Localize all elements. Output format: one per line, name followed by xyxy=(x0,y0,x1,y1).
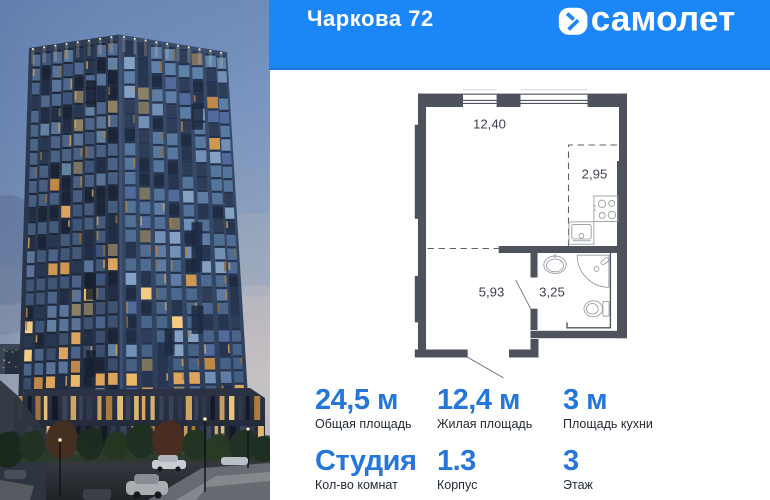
svg-text:2,95: 2,95 xyxy=(582,167,608,182)
svg-text:3,25: 3,25 xyxy=(539,285,565,300)
svg-text:12,40: 12,40 xyxy=(473,117,506,132)
svg-text:5,93: 5,93 xyxy=(479,285,505,300)
svg-text:самолет: самолет xyxy=(591,5,736,39)
